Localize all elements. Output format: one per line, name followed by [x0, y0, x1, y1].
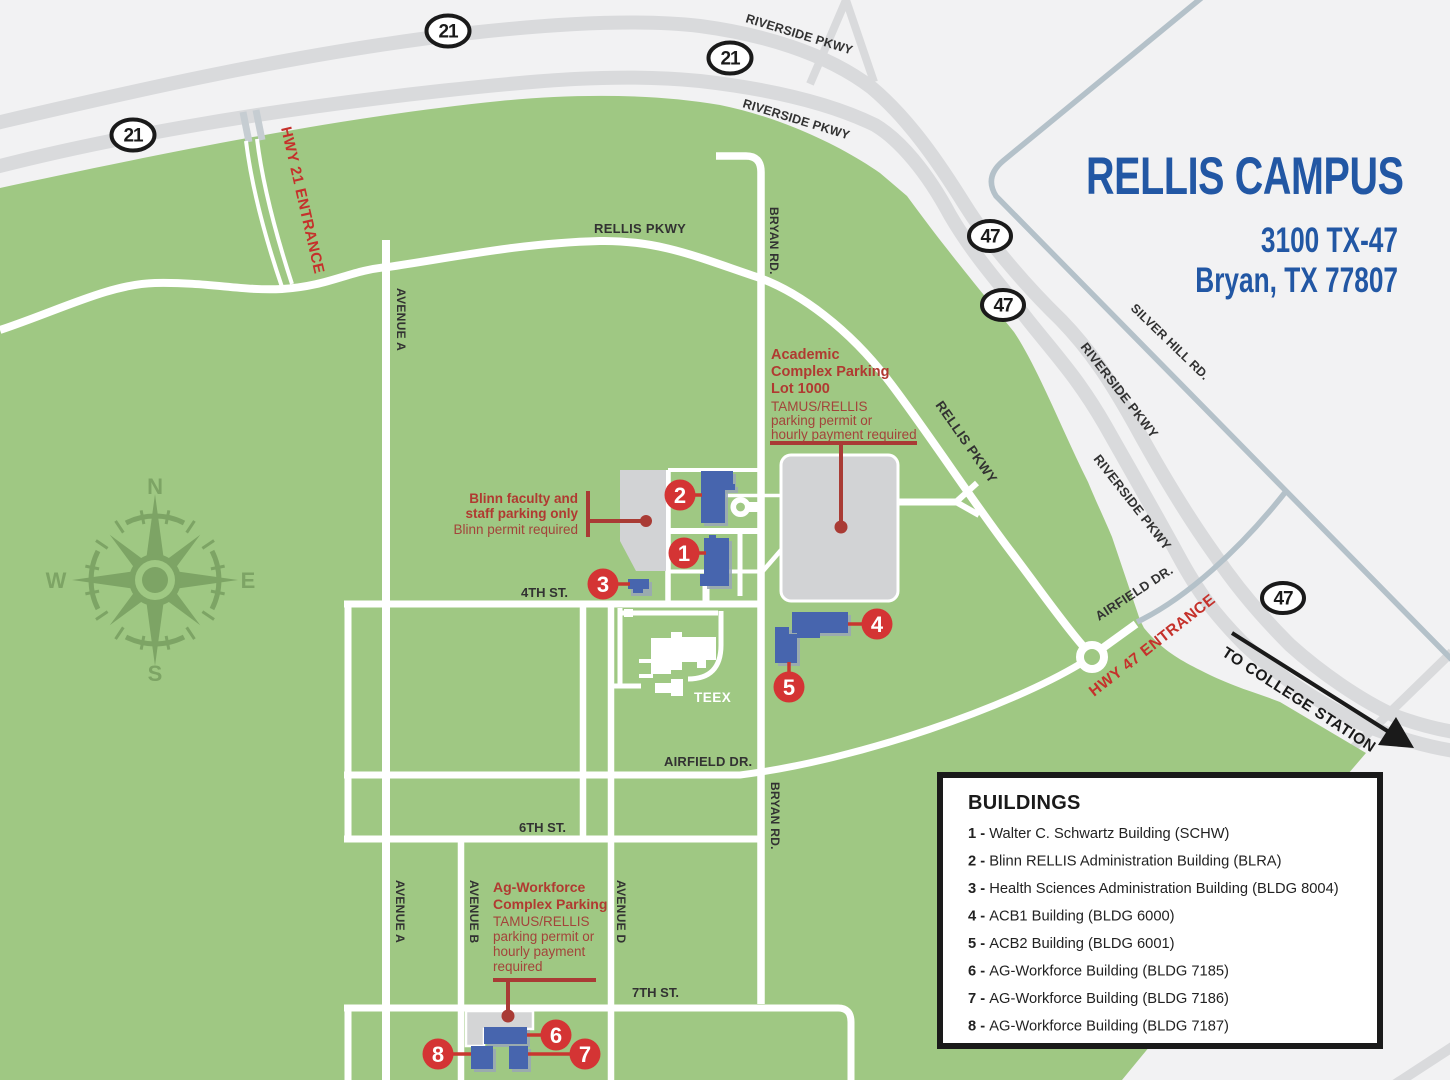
svg-text:RELLIS CAMPUS: RELLIS CAMPUS: [1086, 146, 1404, 205]
svg-text:4 - ACB1 Building (BLDG 6000): 4 - ACB1 Building (BLDG 6000): [968, 909, 1175, 925]
svg-text:5: 5: [783, 675, 795, 700]
svg-text:BRYAN RD.: BRYAN RD.: [768, 782, 782, 850]
svg-text:BUILDINGS: BUILDINGS: [968, 792, 1081, 814]
svg-text:RELLIS PKWY: RELLIS PKWY: [594, 221, 686, 236]
svg-text:hourly payment required: hourly payment required: [771, 427, 917, 442]
svg-text:2: 2: [674, 483, 686, 508]
svg-text:6TH ST.: 6TH ST.: [519, 820, 566, 835]
svg-text:staff parking only: staff parking only: [465, 506, 578, 521]
svg-text:7 - AG-Workforce Building (BLD: 7 - AG-Workforce Building (BLDG 7186): [968, 991, 1229, 1007]
svg-text:Blinn permit required: Blinn permit required: [453, 522, 578, 537]
svg-text:1: 1: [678, 541, 690, 566]
svg-text:7TH ST.: 7TH ST.: [632, 985, 679, 1000]
svg-text:Complex Parking: Complex Parking: [493, 896, 607, 912]
svg-text:Ag-Workforce: Ag-Workforce: [493, 879, 586, 895]
svg-text:6 - AG-Workforce Building (BLD: 6 - AG-Workforce Building (BLDG 7185): [968, 964, 1229, 980]
svg-text:3: 3: [597, 572, 609, 597]
svg-text:Lot 1000: Lot 1000: [771, 381, 830, 397]
svg-text:AVENUE D: AVENUE D: [614, 880, 628, 944]
svg-text:AIRFIELD DR.: AIRFIELD DR.: [664, 754, 752, 769]
svg-text:2 - Blinn RELLIS Administratio: 2 - Blinn RELLIS Administration Building…: [968, 854, 1282, 870]
svg-text:1 - Walter C. Schwartz Buildin: 1 - Walter C. Schwartz Building (SCHW): [968, 826, 1229, 842]
svg-text:AVENUE B: AVENUE B: [467, 880, 481, 944]
svg-text:Blinn faculty and: Blinn faculty and: [469, 491, 578, 506]
svg-text:N: N: [147, 474, 163, 499]
svg-text:6: 6: [550, 1023, 562, 1048]
svg-text:4TH ST.: 4TH ST.: [521, 585, 568, 600]
svg-text:TAMUS/RELLIS: TAMUS/RELLIS: [771, 399, 868, 414]
svg-text:8 - AG-Workforce Building (BLD: 8 - AG-Workforce Building (BLDG 7187): [968, 1019, 1229, 1035]
svg-text:3 - Health Sciences Administra: 3 - Health Sciences Administration Build…: [968, 881, 1339, 897]
svg-text:parking permit or: parking permit or: [771, 413, 873, 428]
svg-text:TAMUS/RELLIS: TAMUS/RELLIS: [493, 914, 590, 929]
svg-text:AVENUE A: AVENUE A: [393, 880, 407, 943]
svg-text:hourly payment: hourly payment: [493, 944, 586, 959]
svg-text:parking permit or: parking permit or: [493, 929, 595, 944]
svg-text:5 - ACB2 Building (BLDG 6001): 5 - ACB2 Building (BLDG 6001): [968, 936, 1175, 952]
svg-text:8: 8: [432, 1042, 444, 1067]
svg-text:E: E: [241, 568, 256, 593]
svg-text:7: 7: [579, 1042, 591, 1067]
svg-text:3100 TX-47: 3100 TX-47: [1261, 220, 1398, 260]
svg-text:AVENUE A: AVENUE A: [394, 288, 408, 351]
svg-text:W: W: [46, 568, 67, 593]
svg-text:4: 4: [871, 612, 884, 637]
svg-text:Bryan, TX 77807: Bryan, TX 77807: [1195, 260, 1398, 300]
svg-text:BRYAN RD.: BRYAN RD.: [767, 207, 781, 275]
svg-text:S: S: [148, 661, 163, 686]
svg-text:Academic: Academic: [771, 347, 840, 363]
svg-text:TEEX: TEEX: [694, 690, 731, 705]
svg-text:required: required: [493, 959, 543, 974]
svg-text:Complex Parking: Complex Parking: [771, 364, 889, 380]
